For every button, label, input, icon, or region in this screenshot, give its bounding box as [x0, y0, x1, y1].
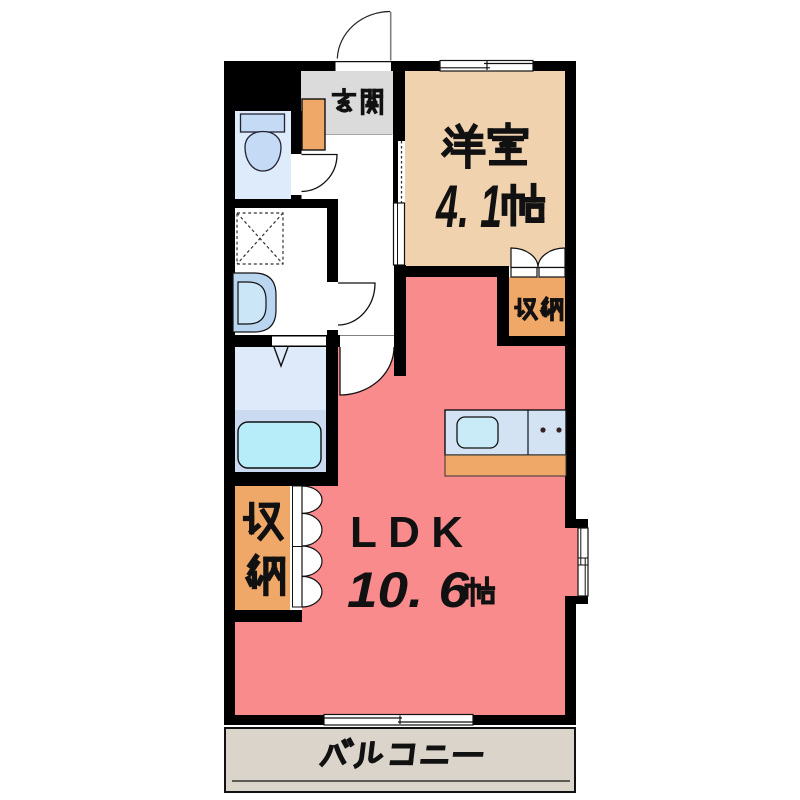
svg-text:10. 6: 10. 6	[347, 562, 470, 618]
svg-text:LDK: LDK	[350, 508, 463, 557]
svg-text:4. 1: 4. 1	[435, 173, 502, 240]
